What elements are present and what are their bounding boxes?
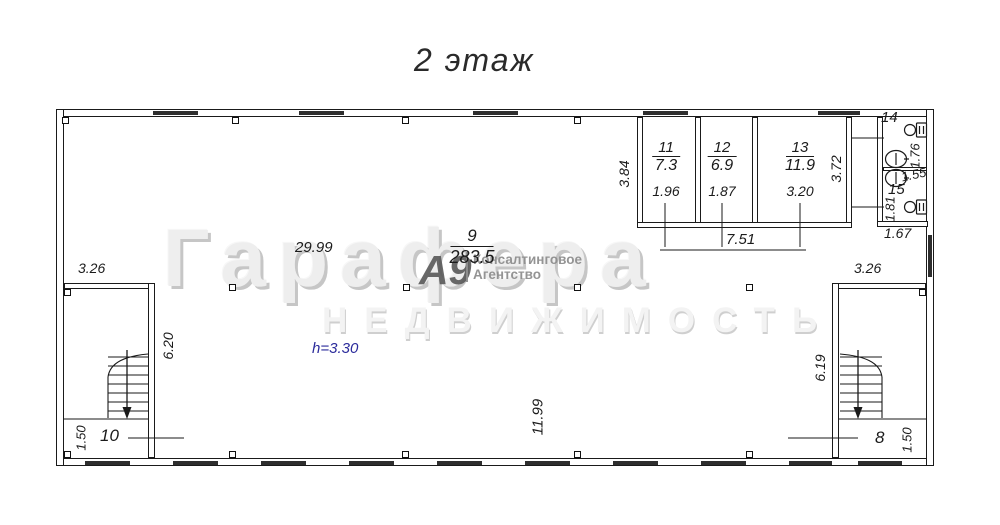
dim-left-stair-width: 3.26 (78, 260, 105, 276)
column-marker (574, 117, 581, 124)
room11-area: 7.3 (655, 157, 677, 175)
wall-room11-room12 (695, 117, 701, 223)
dim-hall-depth: 11.99 (530, 399, 547, 435)
column-marker (64, 289, 71, 296)
window-bar (789, 461, 832, 466)
window-bar (818, 111, 860, 116)
column-marker (402, 117, 409, 124)
column-marker (403, 284, 410, 291)
window-bar (437, 461, 482, 466)
column-marker (402, 451, 409, 458)
column-marker (64, 451, 71, 458)
watermark-subtitle: НЕДВИЖИМОСТЬ (322, 301, 834, 341)
dim-left-stair-bottom: 1.50 (74, 425, 89, 450)
room13-number: 13 (786, 139, 815, 157)
window-bar (349, 461, 394, 466)
room11-label: 11 7.3 (652, 139, 680, 176)
left-stairs-direction-arrow (123, 350, 132, 419)
window-bar (525, 461, 570, 466)
sink-icon (886, 151, 910, 168)
column-marker (574, 451, 581, 458)
floor-plan-page: Гарафера НЕДВИЖИМОСТЬ А9 Консалтинговое … (0, 0, 1000, 525)
column-marker (746, 451, 753, 458)
window-bar (928, 235, 933, 277)
right-stairs-direction-arrow (854, 350, 863, 419)
dim-right-stair-bottom: 1.50 (900, 427, 915, 452)
column-marker (919, 289, 926, 296)
dim-hall-width: 29.99 (295, 239, 333, 256)
room13-area: 11.9 (785, 157, 815, 175)
wall-left (56, 109, 64, 466)
window-bar (153, 111, 198, 116)
room8-number: 8 (875, 428, 884, 448)
dim-right-stair-depth: 6.19 (812, 354, 828, 381)
column-marker (232, 117, 239, 124)
column-marker (746, 284, 753, 291)
toilet-icon (905, 123, 927, 137)
room10-number: 10 (100, 426, 119, 446)
room14-number: 14 (881, 109, 898, 126)
wall-left-stair-top (64, 283, 155, 289)
wall-left-stair-right (148, 283, 155, 458)
wall-right (926, 109, 934, 466)
wall-room12-room13 (752, 117, 758, 223)
wall-right-stair-top (832, 283, 926, 289)
wall-rooms-block-bottom (637, 222, 852, 228)
room11-number: 11 (652, 139, 680, 157)
ceiling-height-note: h=3.30 (312, 340, 358, 357)
page-title: 2 этаж (414, 42, 535, 79)
dim-wc-width: 1.67 (884, 225, 911, 241)
column-marker (62, 117, 69, 124)
dim-right-stair-width: 3.26 (854, 260, 881, 276)
room9-label: 9 283.5 (449, 226, 494, 267)
window-bar (858, 461, 902, 466)
room13-label: 13 11.9 (785, 139, 815, 176)
dim-room12-width: 1.87 (708, 183, 735, 199)
window-bar (613, 461, 658, 466)
dim-room11-width: 1.96 (652, 183, 679, 199)
room12-label: 12 6.9 (708, 139, 737, 176)
dim-wc-lower: 1.81 (883, 196, 898, 221)
dim-left-stair-depth: 6.20 (160, 332, 176, 359)
window-bar (85, 461, 130, 466)
right-stairs-icon (840, 354, 882, 418)
window-bar (643, 111, 688, 116)
toilet-icon (905, 200, 927, 214)
column-marker (229, 284, 236, 291)
column-marker (574, 284, 581, 291)
dim-rooms-block-total: 7.51 (726, 231, 755, 248)
left-stairs-icon (108, 354, 148, 418)
watermark-agency-line2: Агентство (473, 267, 582, 282)
room9-area: 283.5 (449, 247, 494, 268)
wall-right-stair-left (832, 283, 839, 458)
window-bar (701, 461, 746, 466)
watermark-brand: Гарафера (163, 212, 658, 306)
wall-room11-left (637, 117, 643, 228)
room9-number: 9 (450, 226, 493, 247)
column-marker (229, 451, 236, 458)
dim-rooms-block-left: 3.84 (616, 160, 632, 187)
window-bar (173, 461, 218, 466)
window-bar (261, 461, 306, 466)
room12-area: 6.9 (711, 157, 733, 175)
dim-rooms-block-right: 3.72 (828, 155, 844, 182)
room12-number: 12 (708, 139, 737, 157)
dim-room13-width: 3.20 (786, 183, 813, 199)
window-bar (473, 111, 518, 116)
window-bar (299, 111, 344, 116)
wall-room13-right (846, 117, 852, 228)
